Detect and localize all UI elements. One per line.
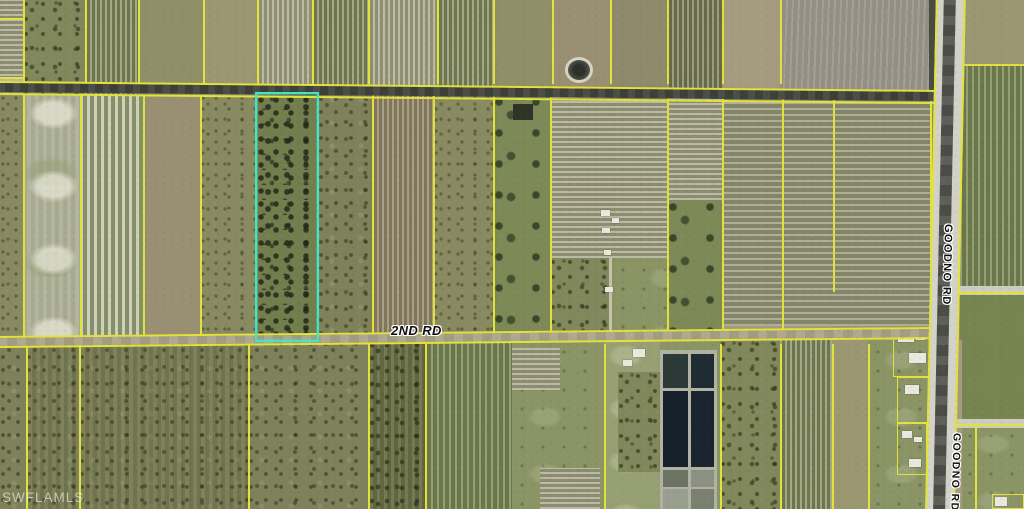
parcel-line-vertical <box>372 95 374 338</box>
parcel-line-vertical <box>868 344 870 509</box>
field-scrub <box>0 95 25 338</box>
field-scrub <box>433 95 493 338</box>
parcel-line-vertical <box>26 344 28 509</box>
farm-building <box>623 360 632 366</box>
parcel-line-vertical <box>780 0 782 84</box>
road-label-2nd-rd: 2ND RD <box>391 324 442 338</box>
farm-building <box>909 459 921 467</box>
parcel-line-horizontal <box>960 64 1024 66</box>
parcel-line-vertical <box>257 0 259 84</box>
farm-building <box>601 210 610 216</box>
field-trees <box>618 372 660 472</box>
ground-patch <box>956 286 1024 295</box>
field-olive2 <box>203 0 257 96</box>
parcel-line-vertical <box>832 344 834 509</box>
image-grain-overlay <box>0 0 1024 509</box>
field-rowsVG <box>437 0 493 96</box>
field-pasture2 <box>660 340 720 509</box>
parcel-line-vertical <box>493 95 495 338</box>
field-olive2 <box>832 340 868 509</box>
parcel-line-vertical <box>80 95 82 338</box>
field-greentrees <box>493 95 550 338</box>
field-rowsHL <box>540 468 600 509</box>
field-rowsVL <box>257 0 312 96</box>
parcel-line-vertical <box>782 95 784 338</box>
road-label-goodno-rd-lower: GOODNO RD <box>949 433 962 509</box>
parcel-line-horizontal <box>956 424 1024 426</box>
parcel-line-vertical <box>433 95 435 338</box>
parcel-line-vertical <box>722 0 724 84</box>
field-olive2 <box>960 0 1024 64</box>
field-pasture2 <box>512 340 604 509</box>
ground-patch <box>952 419 1024 428</box>
farm-building <box>902 431 912 438</box>
parcel-line-vertical <box>368 0 370 84</box>
parcel-line-vertical <box>368 344 370 509</box>
parcel-line-horizontal <box>0 18 23 20</box>
top-road <box>0 81 948 105</box>
farm-building <box>612 218 619 223</box>
field-green2 <box>960 294 1024 424</box>
ground-patch <box>663 354 688 388</box>
parcel-line-vertical <box>493 0 495 84</box>
field-rowsH <box>782 95 833 326</box>
parcel-line-vertical <box>610 0 612 84</box>
field-rowsVL <box>368 0 437 96</box>
field-rowsVW <box>80 95 143 338</box>
field-pasture2 <box>868 340 930 509</box>
parcel-line-vertical <box>23 0 25 84</box>
farm-building <box>633 349 645 357</box>
field-pasture2 <box>960 424 1024 509</box>
parcel-line-vertical <box>248 344 250 509</box>
parcel-line-vertical <box>833 95 835 292</box>
field-brown2 <box>610 0 667 96</box>
farm-building <box>604 250 611 255</box>
field-rowsVD <box>667 0 722 96</box>
parcel-line-vertical <box>23 95 25 338</box>
parcel-line-vertical <box>79 344 81 509</box>
field-greentrees <box>667 200 722 338</box>
field-trees <box>720 340 780 509</box>
parcel-line-vertical <box>667 95 669 338</box>
field-rowsHL <box>512 348 560 390</box>
field-pasture2 <box>550 258 667 338</box>
parcel-line-vertical <box>722 95 724 338</box>
pond <box>565 57 593 83</box>
parcel-line-vertical <box>604 344 606 509</box>
road-label-goodno-rd-upper: GOODNO RD <box>940 224 953 306</box>
mls-watermark: SWFLAMLS <box>2 491 84 505</box>
field-scrub2 <box>318 95 372 338</box>
field-scrub2 <box>0 340 26 509</box>
field-olive <box>493 0 552 96</box>
parcel-line-vertical <box>85 0 87 84</box>
parcel-line-vertical <box>437 0 439 84</box>
second-road <box>0 327 952 348</box>
field-rowsHL <box>667 95 722 200</box>
field-scrubV <box>79 340 248 509</box>
highlighted-subject-parcel <box>255 92 319 342</box>
parcel-line-vertical <box>203 0 205 84</box>
field-pasture <box>604 340 660 509</box>
field-graybrown <box>780 0 940 96</box>
parcel-line-vertical <box>720 344 722 509</box>
ground-patch <box>691 489 714 509</box>
field-scrubV <box>26 340 79 509</box>
field-scrub2 <box>248 340 368 509</box>
parcel-line-vertical <box>975 424 977 509</box>
field-scrubVD <box>368 340 425 509</box>
parcel-line-vertical <box>200 95 202 338</box>
field-brown <box>143 95 200 338</box>
parcel-line-vertical <box>312 0 314 84</box>
parcel-line-vertical <box>143 95 145 338</box>
aerial-parcel-map: 2ND RD GOODNO RD GOODNO RD SWFLAMLS <box>0 0 1024 509</box>
farm-building <box>602 228 610 233</box>
parcel-line-vertical <box>138 0 140 84</box>
parcel-line-vertical <box>425 344 427 509</box>
field-rowsH <box>833 95 930 326</box>
parcel-line-vertical <box>667 0 669 84</box>
parcel-boundary-rect <box>897 377 929 423</box>
parcel-line-vertical <box>552 0 554 84</box>
field-rowsVG2 <box>425 340 512 509</box>
parcel-line-horizontal <box>0 77 23 79</box>
field-tan <box>722 0 780 96</box>
ground-patch <box>691 391 714 467</box>
field-trees <box>550 258 612 338</box>
ground-patch <box>513 104 533 120</box>
field-rowsVG2 <box>960 64 1024 294</box>
parcel-line-horizontal <box>958 292 1024 294</box>
ground-patch <box>663 391 688 467</box>
field-rowsVG <box>312 0 368 96</box>
ground-patch <box>691 354 714 388</box>
parcel-line-vertical <box>780 344 782 509</box>
ground-patch <box>691 470 714 487</box>
farm-building <box>605 287 613 292</box>
field-rowsHL <box>550 95 667 258</box>
field-rowsVG <box>780 340 832 509</box>
farm-building <box>909 353 926 363</box>
field-scrub <box>200 95 257 338</box>
field-rowsVBr <box>372 95 433 338</box>
field-rowsH <box>722 95 782 326</box>
farm-building <box>914 437 922 442</box>
farm-building <box>905 385 919 394</box>
farm-building <box>995 497 1007 506</box>
field-pastureL <box>25 95 80 338</box>
ground-patch <box>663 470 688 487</box>
parcel-line-vertical <box>550 95 552 338</box>
ground-patch <box>660 350 717 509</box>
ground-patch <box>609 258 612 338</box>
ground-patch <box>663 489 688 509</box>
